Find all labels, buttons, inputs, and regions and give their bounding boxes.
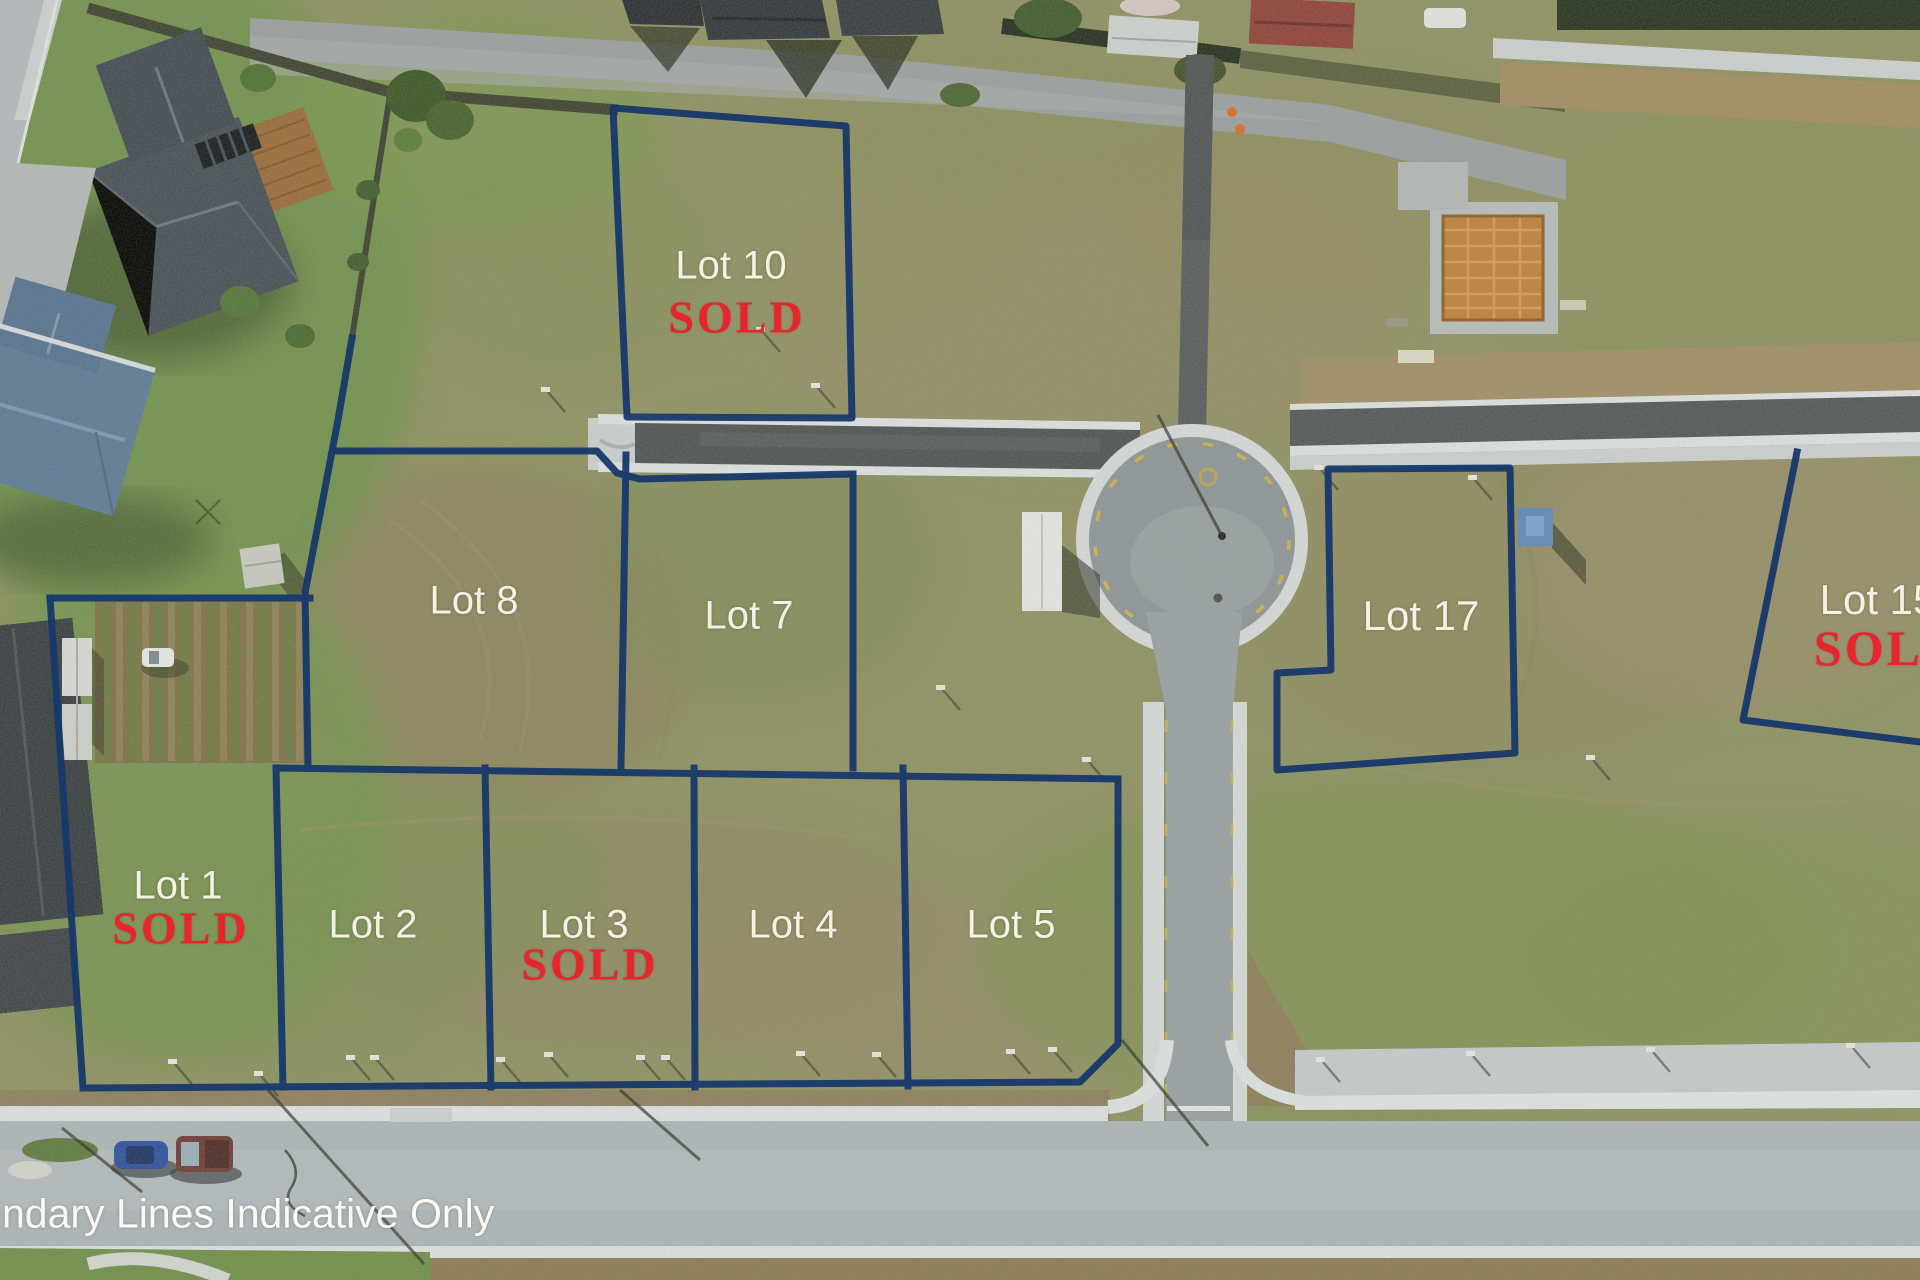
boundary-lot4-lot5 [903, 768, 908, 1086]
lot-label-7: Lot 7 [705, 594, 794, 639]
disclaimer-text: ndary Lines Indicative Only [2, 1191, 494, 1238]
sold-badge-lot3: SOLD [521, 938, 658, 991]
lot-label-5: Lot 5 [967, 903, 1056, 948]
sold-badge-lot15: SOLD [1814, 619, 1920, 677]
lot-label-17: Lot 17 [1363, 592, 1480, 640]
sold-badge-lot1: SOLD [112, 902, 249, 955]
boundary-lot8-lot7 [621, 455, 626, 768]
lot-label-2: Lot 2 [329, 903, 418, 948]
boundary-lot3-lot4 [694, 768, 695, 1087]
aerial-subdivision-photo: Lot 10 SOLD Lot 8 Lot 7 Lot 17 Lot 15 SO… [0, 0, 1920, 1280]
lot-label-10: Lot 10 [675, 244, 786, 289]
lot-label-4: Lot 4 [749, 903, 838, 948]
lot-label-15: Lot 15 [1820, 576, 1920, 624]
aerial-photo-canvas [0, 0, 1920, 1280]
sold-badge-lot10: SOLD [668, 291, 805, 344]
lot-label-8: Lot 8 [430, 579, 519, 624]
